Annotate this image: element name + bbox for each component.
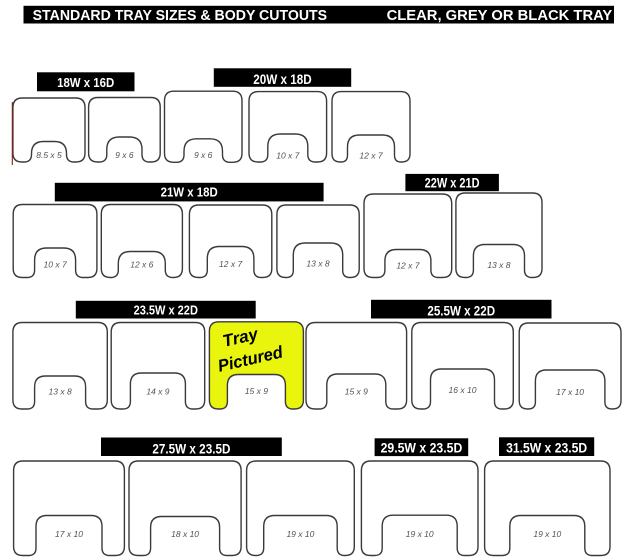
svg-text:9 x 6: 9 x 6: [194, 150, 213, 160]
svg-text:17 x 10: 17 x 10: [556, 387, 584, 397]
svg-text:10 x 7: 10 x 7: [44, 260, 67, 270]
svg-text:12 x 6: 12 x 6: [130, 260, 153, 270]
svg-text:25.5W x 22D: 25.5W x 22D: [427, 303, 495, 318]
svg-text:15 x 9: 15 x 9: [345, 387, 368, 397]
svg-text:8.5 x 5: 8.5 x 5: [36, 150, 62, 160]
svg-text:9 x 6: 9 x 6: [115, 150, 134, 160]
svg-text:13 x 8: 13 x 8: [49, 387, 72, 397]
svg-text:13 x 8: 13 x 8: [487, 260, 510, 270]
svg-text:19 x 10: 19 x 10: [406, 529, 434, 539]
svg-text:18 x 10: 18 x 10: [171, 529, 199, 539]
svg-text:15 x 9: 15 x 9: [245, 386, 268, 396]
svg-text:31.5W x 23.5D: 31.5W x 23.5D: [506, 439, 587, 455]
svg-text:STANDARD TRAY SIZES & BODY CUT: STANDARD TRAY SIZES & BODY CUTOUTS: [33, 8, 328, 24]
svg-text:14 x 9: 14 x 9: [146, 387, 169, 397]
svg-text:19 x 10: 19 x 10: [533, 529, 561, 539]
svg-text:22W x 21D: 22W x 21D: [425, 175, 480, 191]
svg-text:CLEAR, GREY OR BLACK TRAY: CLEAR, GREY OR BLACK TRAY: [387, 8, 613, 24]
svg-text:17 x 10: 17 x 10: [55, 529, 83, 539]
svg-text:16 x 10: 16 x 10: [449, 385, 477, 395]
svg-text:12 x 7: 12 x 7: [396, 261, 419, 271]
svg-text:19 x 10: 19 x 10: [286, 529, 314, 539]
svg-text:29.5W x 23.5D: 29.5W x 23.5D: [381, 439, 463, 455]
svg-text:18W x 16D: 18W x 16D: [57, 75, 114, 90]
svg-text:23.5W x 22D: 23.5W x 22D: [134, 302, 198, 317]
svg-text:12 x 7: 12 x 7: [219, 259, 242, 269]
svg-text:10 x 7: 10 x 7: [276, 151, 299, 161]
svg-text:13 x 8: 13 x 8: [306, 259, 329, 269]
svg-text:27.5W x 23.5D: 27.5W x 23.5D: [152, 441, 230, 456]
svg-text:12 x 7: 12 x 7: [359, 151, 382, 161]
svg-text:21W x 18D: 21W x 18D: [161, 185, 218, 200]
svg-text:20W x 18D: 20W x 18D: [253, 71, 312, 87]
